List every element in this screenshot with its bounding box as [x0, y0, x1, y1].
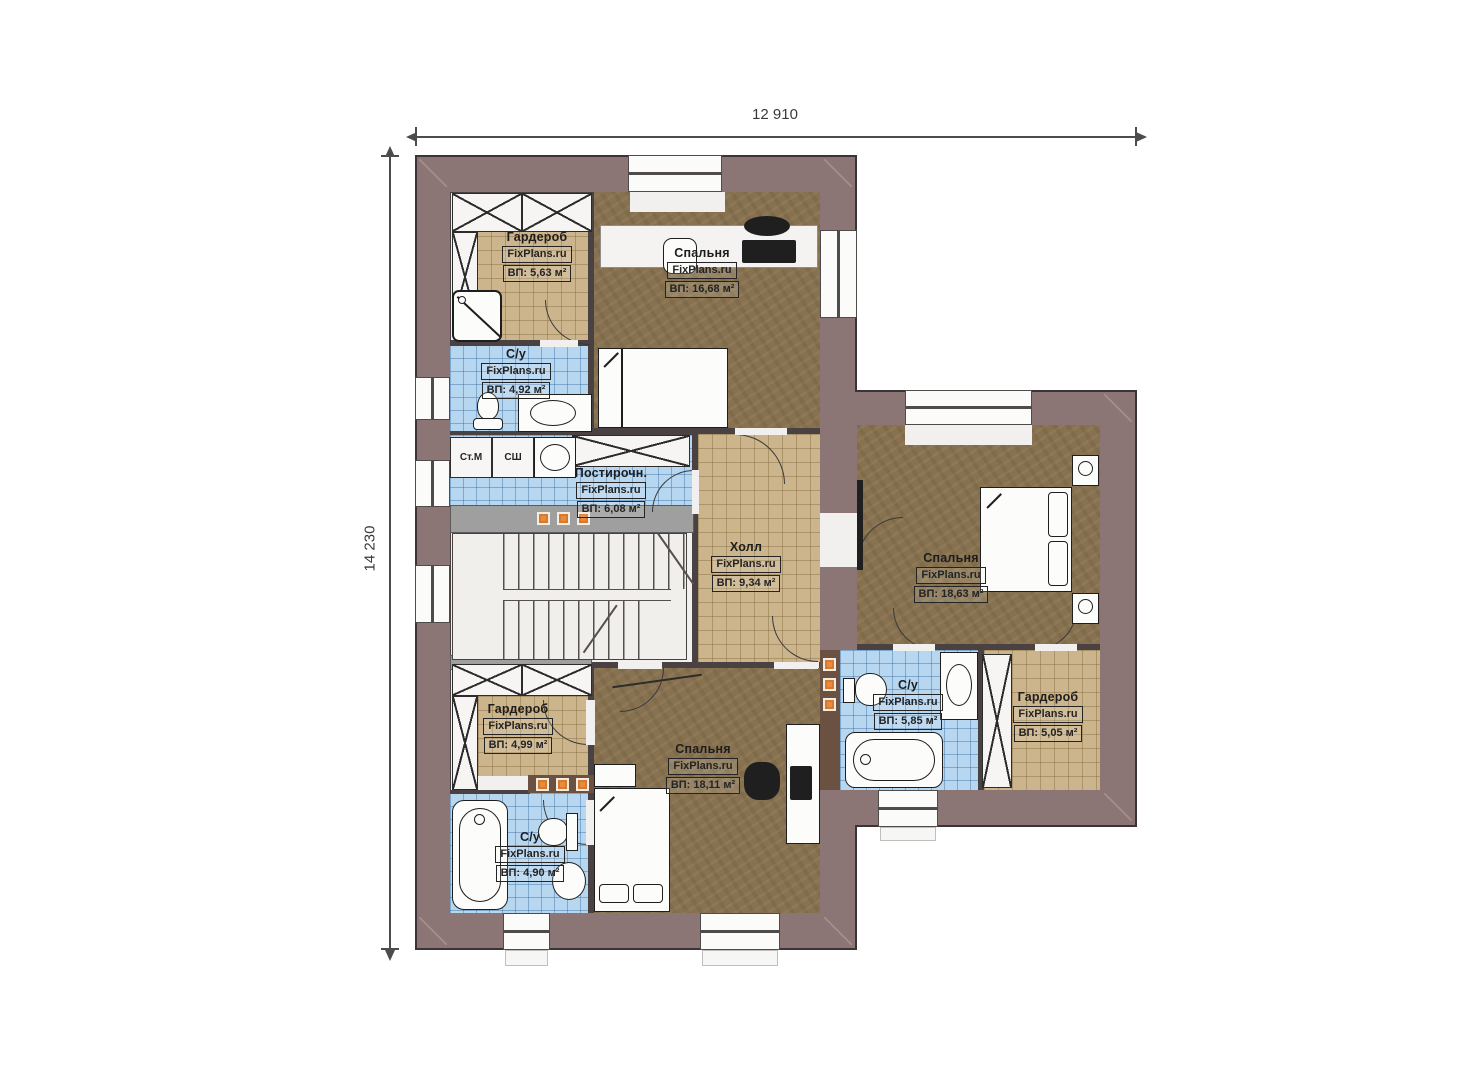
- nightstand: [594, 764, 636, 787]
- staircase: [452, 533, 687, 660]
- room-name: Гардероб: [507, 230, 568, 244]
- room-label-bath-top-left: С/у FixPlans.ru ВП: 4,92 м²: [461, 347, 571, 399]
- room-name: С/у: [898, 678, 918, 692]
- tv-panel: [857, 480, 863, 570]
- window: [415, 565, 450, 623]
- dim-arrow-right: [1136, 132, 1147, 142]
- room-label-wardrobe-right: Гардероб FixPlans.ru ВП: 5,05 м²: [993, 690, 1103, 742]
- stair-treads-upper: [503, 534, 686, 589]
- window: [878, 790, 938, 827]
- room-label-wardrobe-bottom-left: Гардероб FixPlans.ru ВП: 4,99 м²: [463, 702, 573, 754]
- wardrobe-unit: [452, 193, 522, 232]
- wall-outline: [1135, 390, 1137, 827]
- dimension-width-label: 12 910: [700, 106, 850, 123]
- vent-marker: [823, 698, 836, 711]
- window-sill: [702, 950, 778, 966]
- washing-machine: Ст.М: [450, 437, 492, 478]
- door-opening: [692, 470, 699, 514]
- door-opening: [820, 513, 857, 567]
- wall-outline: [855, 825, 857, 950]
- door-opening: [1035, 644, 1077, 651]
- watermark: FixPlans.ru: [576, 482, 645, 499]
- room-name: Гардероб: [488, 702, 549, 716]
- door-opening: [893, 644, 935, 651]
- door-opening: [774, 662, 818, 669]
- room-area: ВП: 5,05 м²: [1014, 725, 1083, 742]
- room-name: Холл: [730, 540, 762, 554]
- vent-marker: [823, 678, 836, 691]
- window: [905, 390, 1032, 425]
- watermark: FixPlans.ru: [916, 567, 985, 584]
- wardrobe-unit: [522, 664, 592, 696]
- room-label-bedroom-top: Спальня FixPlans.ru ВП: 16,68 м²: [647, 246, 757, 298]
- vent-marker: [823, 658, 836, 671]
- partition-wall: [592, 662, 618, 668]
- window-niche: [905, 425, 1032, 445]
- wall-corner-hatch: [419, 917, 447, 945]
- monitor: [790, 766, 812, 800]
- room-label-bedroom-right: Спальня FixPlans.ru ВП: 18,63 м²: [896, 551, 1006, 603]
- pillow: [599, 884, 629, 903]
- room-name: С/у: [506, 347, 526, 361]
- wall-corner-hatch: [419, 159, 447, 187]
- room-area: ВП: 16,68 м²: [665, 281, 740, 298]
- dim-arrow-down: [385, 950, 395, 961]
- partition-wall: [692, 428, 698, 470]
- room-label-bath-bottom-left: С/у FixPlans.ru ВП: 4,90 м²: [475, 830, 585, 882]
- washing-machine-label: Ст.М: [460, 452, 482, 463]
- door-opening: [540, 340, 578, 347]
- room-name: С/у: [520, 830, 540, 844]
- room-area: ВП: 18,11 м²: [666, 777, 740, 794]
- lamp: [1078, 599, 1093, 614]
- partition-wall: [935, 644, 1035, 650]
- window: [820, 230, 857, 318]
- wardrobe-unit: [572, 435, 690, 467]
- bed-fold-line: [599, 796, 614, 811]
- partition-wall: [857, 644, 893, 650]
- watermark: FixPlans.ru: [495, 846, 564, 863]
- watermark: FixPlans.ru: [667, 262, 736, 279]
- room-label-hall: Холл FixPlans.ru ВП: 9,34 м²: [691, 540, 801, 592]
- room-area: ВП: 4,92 м²: [482, 382, 551, 399]
- room-area: ВП: 4,99 м²: [484, 737, 553, 754]
- wall-outline: [415, 155, 417, 950]
- room-label-bedroom-bottom: Спальня FixPlans.ru ВП: 18,11 м²: [648, 742, 758, 794]
- room-area: ВП: 9,34 м²: [712, 575, 781, 592]
- bed-fold-line: [603, 352, 618, 367]
- window-niche: [630, 192, 725, 212]
- bathtub-drain: [474, 814, 485, 825]
- room-name: Спальня: [674, 246, 729, 260]
- floor-plan-page: { "dimensions": { "width": "12 910", "he…: [0, 0, 1473, 1080]
- room-label-wardrobe-top-left: Гардероб FixPlans.ru ВП: 5,63 м²: [482, 230, 592, 282]
- wall-corner-hatch: [1104, 394, 1132, 422]
- vent-marker: [556, 778, 569, 791]
- watermark: FixPlans.ru: [481, 363, 550, 380]
- pillow: [633, 884, 663, 903]
- room-area: ВП: 6,08 м²: [577, 501, 646, 518]
- vent-marker: [537, 512, 550, 525]
- door-opening: [735, 428, 787, 435]
- window: [503, 913, 550, 950]
- sink: [530, 400, 576, 426]
- dryer-label: СШ: [504, 452, 521, 463]
- wardrobe-unit: [452, 664, 522, 696]
- dimension-line-top: [415, 136, 1137, 138]
- dim-arrow-up: [385, 146, 395, 157]
- window-sill: [880, 827, 936, 841]
- watermark: FixPlans.ru: [873, 694, 942, 711]
- window: [415, 377, 450, 420]
- room-label-bath-right: С/у FixPlans.ru ВП: 5,85 м²: [852, 678, 964, 730]
- partition-wall: [787, 428, 820, 434]
- room-name: Спальня: [675, 742, 730, 756]
- vent-marker: [536, 778, 549, 791]
- partition-wall: [662, 662, 775, 668]
- partition-wall: [594, 428, 735, 434]
- bed: [598, 348, 728, 428]
- wall-corner-hatch: [1104, 793, 1132, 821]
- room-area: ВП: 5,63 м²: [503, 265, 572, 282]
- watermark: FixPlans.ru: [483, 718, 552, 735]
- partition-wall: [1077, 644, 1100, 650]
- watermark: FixPlans.ru: [502, 246, 571, 263]
- watermark: FixPlans.ru: [1013, 706, 1082, 723]
- dimension-line-left: [389, 155, 391, 950]
- room-name: Спальня: [923, 551, 978, 565]
- dryer: СШ: [492, 437, 534, 478]
- shower: [452, 290, 502, 342]
- door-opening: [618, 662, 662, 669]
- pillow: [1048, 541, 1068, 586]
- wardrobe-unit: [522, 193, 592, 232]
- partition-wall: [450, 790, 530, 794]
- window: [415, 460, 450, 507]
- window: [700, 913, 780, 950]
- window-sill: [505, 950, 548, 966]
- watermark: FixPlans.ru: [668, 758, 737, 775]
- stair-treads-lower: [503, 601, 643, 659]
- bed-head-line: [621, 349, 623, 427]
- room-area: ВП: 5,85 м²: [874, 713, 943, 730]
- room-name: Постирочн.: [575, 466, 647, 480]
- vent-marker: [576, 778, 589, 791]
- stair-stringer: [503, 589, 671, 601]
- shower-drain-icon: [458, 296, 466, 304]
- wall-corner-hatch: [824, 159, 852, 187]
- window: [628, 155, 722, 192]
- room-label-laundry: Постирочн. FixPlans.ru ВП: 6,08 м²: [555, 466, 667, 518]
- pillow: [1048, 492, 1068, 537]
- toilet-base: [473, 418, 503, 430]
- bathtub: [845, 732, 943, 788]
- desk-chair: [744, 216, 790, 236]
- room-area: ВП: 18,63 м²: [914, 586, 989, 603]
- room-name: Гардероб: [1018, 690, 1079, 704]
- lamp: [1078, 461, 1093, 476]
- duct-strip: [820, 650, 840, 790]
- bed-fold-line: [986, 493, 1001, 508]
- door-opening: [586, 700, 595, 745]
- wall-outline: [415, 948, 857, 950]
- wall-corner-hatch: [824, 917, 852, 945]
- dim-arrow-left: [406, 132, 417, 142]
- watermark: FixPlans.ru: [711, 556, 780, 573]
- bathtub-drain: [860, 754, 871, 765]
- room-area: ВП: 4,90 м²: [496, 865, 565, 882]
- dimension-height-label: 14 230: [362, 474, 379, 624]
